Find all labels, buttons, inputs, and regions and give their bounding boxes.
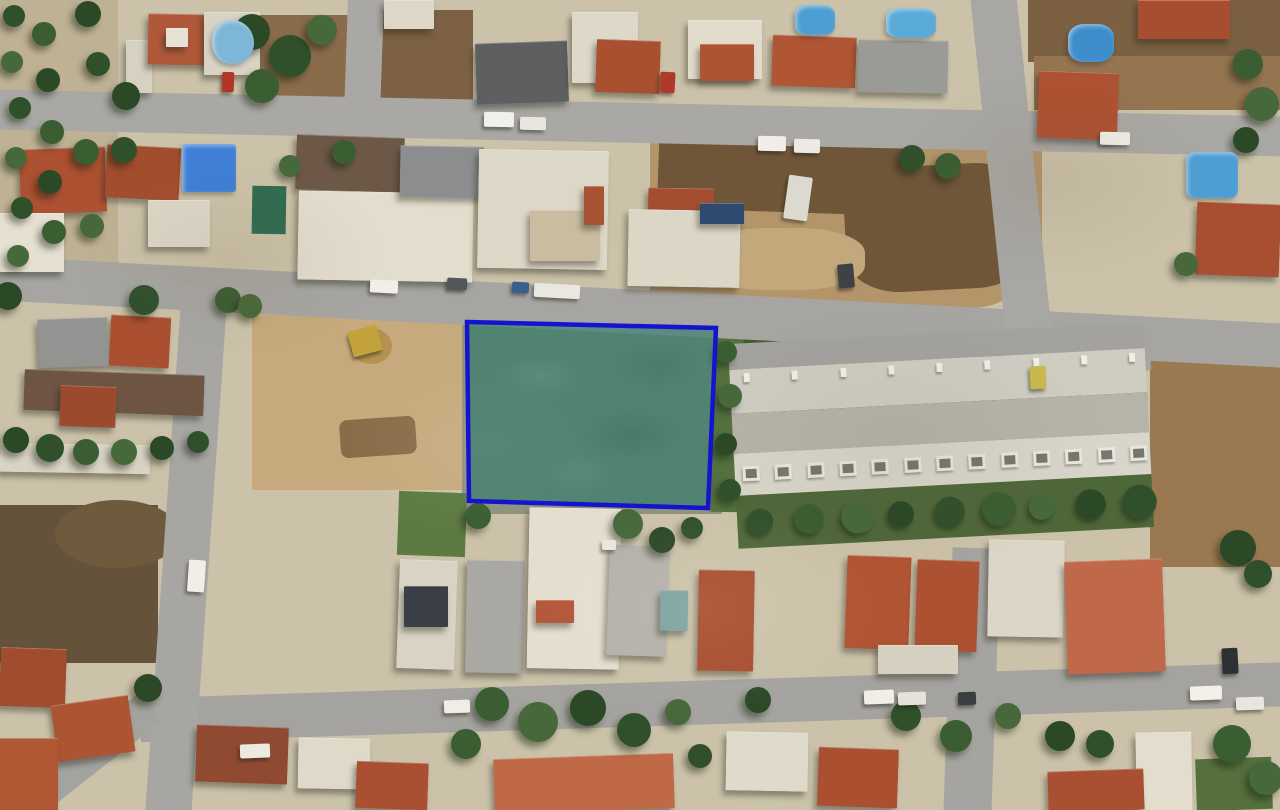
parcel-boundary	[467, 322, 716, 508]
satellite-image	[0, 0, 1280, 810]
parcel-annotation	[0, 0, 1280, 810]
